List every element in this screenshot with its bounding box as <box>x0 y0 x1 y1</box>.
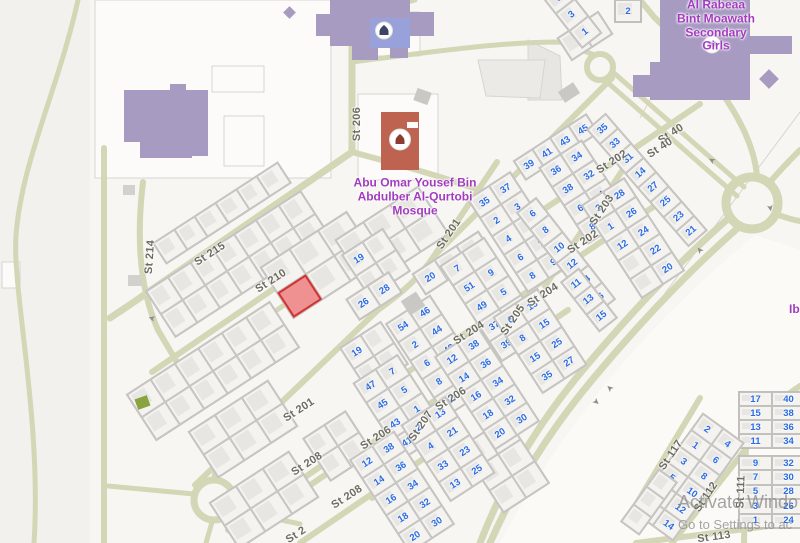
watermark-line2: Go to Settings to ac <box>678 517 798 532</box>
school-building <box>170 84 186 94</box>
street-label: St 206 <box>351 107 363 141</box>
building-footprint <box>146 410 167 431</box>
building-footprint <box>240 477 263 499</box>
building-footprint <box>193 424 216 446</box>
parcel[interactable]: 32 <box>772 456 800 470</box>
building-footprint <box>241 348 262 369</box>
building-footprint <box>170 395 191 416</box>
building-footprint <box>219 406 242 428</box>
building-footprint <box>502 447 522 467</box>
building-footprint <box>365 329 383 348</box>
building-footprint <box>283 199 303 220</box>
parcel-number: 15 <box>740 407 771 419</box>
building-footprint <box>640 491 656 507</box>
building-footprint <box>255 500 278 522</box>
parcel-block: 1740153813361134 <box>738 391 800 449</box>
building-footprint <box>229 517 252 539</box>
building-footprint <box>150 285 170 306</box>
parcel-number: 11 <box>740 435 771 447</box>
parcel[interactable]: 15 <box>739 406 772 420</box>
building-footprint <box>179 356 200 377</box>
building-footprint <box>308 432 327 451</box>
school-building <box>633 75 660 97</box>
parcel-number: 2 <box>616 1 640 21</box>
building-footprint <box>628 508 644 524</box>
road <box>770 150 800 182</box>
building-footprint <box>466 245 484 263</box>
building-footprint <box>187 293 207 314</box>
parcel-number: 30 <box>773 471 800 483</box>
building-footprint <box>217 364 238 385</box>
building-footprint <box>238 228 258 249</box>
parcel[interactable]: 36 <box>772 420 800 434</box>
building-footprint <box>250 310 271 331</box>
watermark-line1: Activate Windo <box>678 492 798 513</box>
school-building <box>178 120 208 156</box>
parcel-number: 17 <box>740 393 771 405</box>
building-footprint <box>226 326 247 347</box>
building-footprint <box>199 210 217 228</box>
building-footprint <box>516 469 536 489</box>
parcel[interactable]: 2 <box>615 0 641 22</box>
building-footprint <box>260 412 283 434</box>
parcel[interactable]: 30 <box>772 470 800 484</box>
parcel[interactable]: 34 <box>772 434 800 448</box>
building-footprint <box>165 307 185 328</box>
building-footprint <box>234 429 257 451</box>
building-footprint <box>367 236 385 255</box>
building-footprint <box>214 495 237 517</box>
map-canvas[interactable]: 1919262839414345353331142725232136343832… <box>0 0 800 543</box>
school-label[interactable]: Al Rabeaa Bint Moawath Secondary Girls <box>674 0 758 54</box>
mosque-icon[interactable] <box>389 129 411 156</box>
building-footprint <box>267 460 290 482</box>
building-footprint <box>261 213 281 234</box>
gray-building <box>123 185 135 195</box>
ibn-label[interactable]: Ibn <box>789 303 800 317</box>
parcel[interactable]: 9 <box>739 456 772 470</box>
building-footprint <box>653 474 669 490</box>
school-building <box>408 12 434 36</box>
roundabout <box>587 54 613 80</box>
building-footprint <box>321 453 340 472</box>
parcel[interactable]: 40 <box>772 392 800 406</box>
building-footprint <box>240 183 258 201</box>
parcel-number: 40 <box>773 393 800 405</box>
building-footprint <box>622 255 639 272</box>
building-footprint <box>265 333 286 354</box>
parcel[interactable]: 38 <box>772 406 800 420</box>
building-footprint <box>220 197 238 215</box>
parcel-number: 34 <box>773 435 800 447</box>
parcel-number: 13 <box>740 421 771 433</box>
building-footprint <box>410 219 434 242</box>
building-footprint <box>202 341 223 362</box>
building-footprint <box>178 224 196 242</box>
building-footprint <box>329 419 348 438</box>
parcel-outline <box>224 116 264 166</box>
gray-building <box>128 275 142 286</box>
building-footprint <box>193 379 214 400</box>
school-building <box>316 14 334 36</box>
parcel-number: 32 <box>773 457 800 469</box>
parcel-number: 9 <box>740 457 771 469</box>
parcel[interactable]: 13 <box>739 420 772 434</box>
direction-arrow-icon: ➤ <box>764 203 776 212</box>
building-footprint <box>209 279 229 300</box>
mosque-label[interactable]: Abu Omar Yousef Bin Abdulber Al-Qurtobi … <box>354 176 477 217</box>
parcel-number: 38 <box>773 407 800 419</box>
building-footprint <box>494 484 514 504</box>
parcel[interactable]: 11 <box>739 434 772 448</box>
building-footprint <box>158 237 176 255</box>
building-footprint <box>281 483 304 505</box>
parcel-number: 36 <box>773 421 800 433</box>
building-footprint <box>246 389 269 411</box>
mosque-building-notch <box>407 122 418 128</box>
parcel-block: 2 <box>614 0 642 23</box>
parcel-outline <box>212 66 264 92</box>
mosque-icon[interactable] <box>375 22 393 45</box>
building-footprint <box>294 240 319 265</box>
parcel[interactable]: 17 <box>739 392 772 406</box>
building-footprint <box>172 271 192 292</box>
building-footprint <box>231 265 251 286</box>
road <box>206 522 212 543</box>
road <box>108 486 194 494</box>
street-label: St 214 <box>143 240 157 275</box>
building-footprint <box>634 273 651 290</box>
building-footprint <box>155 372 176 393</box>
building-footprint <box>261 170 279 188</box>
open-area <box>478 60 545 98</box>
windows-activation-watermark: Activate Windo Go to Settings to ac <box>678 492 798 532</box>
building-footprint <box>208 446 231 468</box>
